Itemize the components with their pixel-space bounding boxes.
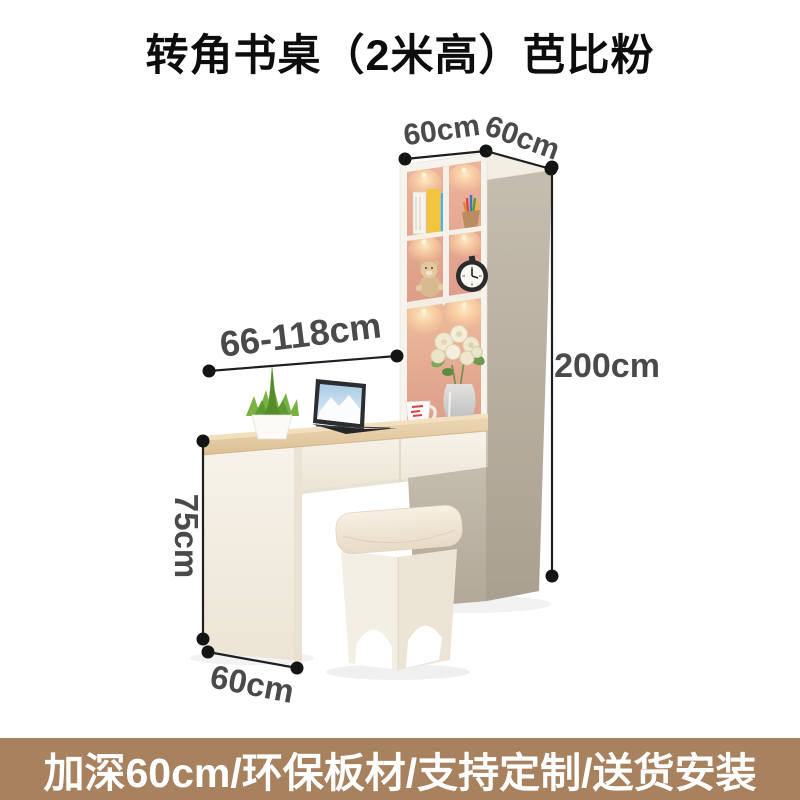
label-cabinet-top-width: 60cm: [401, 109, 482, 152]
label-desk-width: 66-118cm: [218, 304, 384, 364]
desk-left-panel-edge: [294, 447, 302, 662]
succulent-plant: [246, 364, 299, 439]
promo-banner: 加深60cm/环保板材/支持定制/送货安装: [0, 738, 800, 800]
furniture-scene: 60cm 60cm 66-118cm 200cm 75cm 60cm: [0, 0, 800, 800]
stool: [335, 504, 464, 670]
cabinet-side-panel: [487, 153, 552, 601]
label-desk-height: 75cm: [168, 494, 205, 578]
plant-pot: [252, 415, 292, 439]
product-image-card: 转角书桌（2米高）芭比粉: [0, 0, 800, 800]
desk-left-panel: [202, 447, 302, 661]
label-cabinet-height: 200cm: [554, 347, 660, 385]
